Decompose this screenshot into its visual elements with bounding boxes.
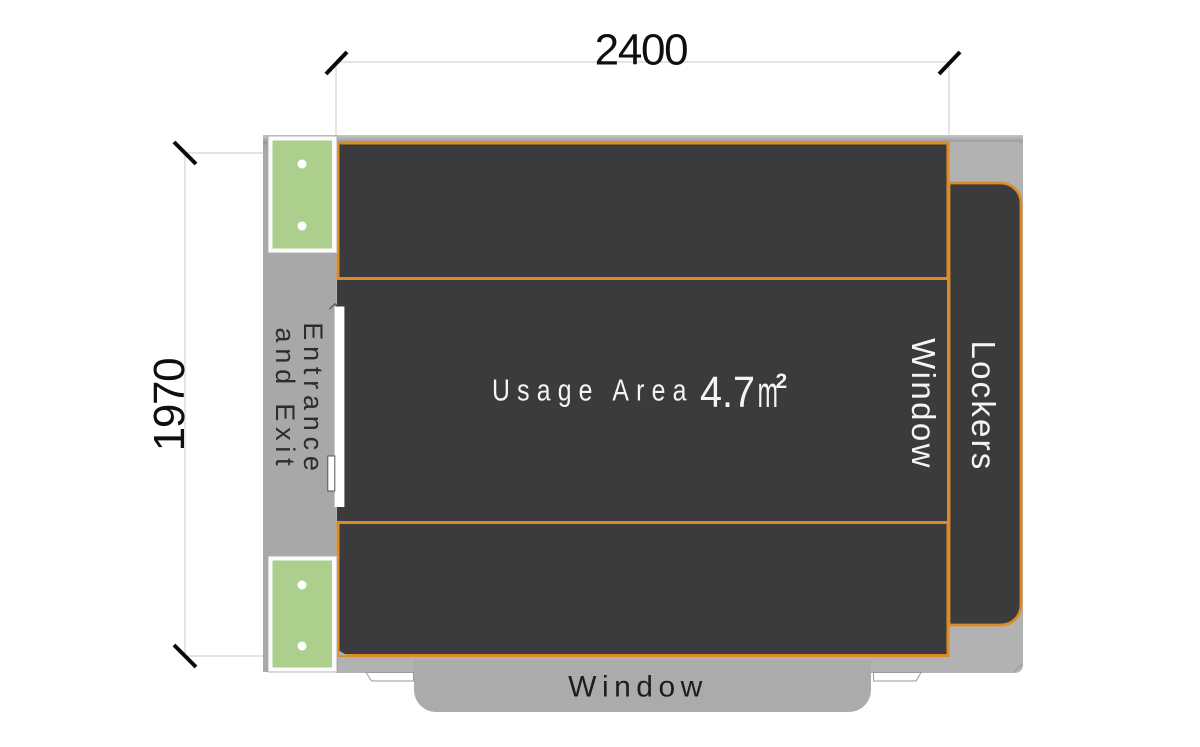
svg-text:2400: 2400 [595, 26, 688, 75]
svg-text:2: 2 [776, 370, 788, 393]
svg-text:Window: Window [568, 671, 708, 704]
svg-text:Usage Area: Usage Area [492, 373, 694, 407]
svg-text:1970: 1970 [145, 359, 194, 452]
svg-text:Window: Window [905, 338, 942, 470]
svg-text:Entranceand Exit: Entranceand Exit [270, 322, 328, 476]
svg-text:4.7: 4.7 [700, 367, 755, 416]
svg-text:Lockers: Lockers [965, 341, 1002, 472]
